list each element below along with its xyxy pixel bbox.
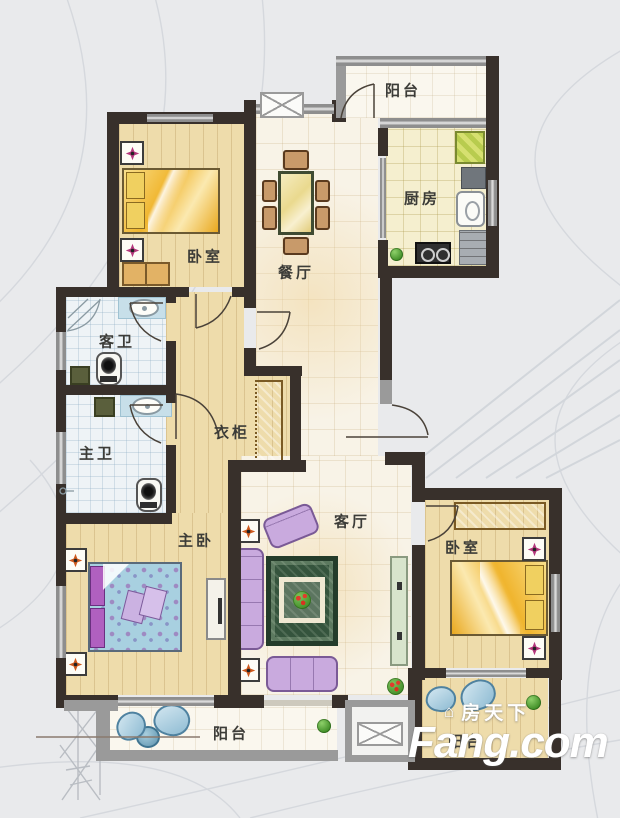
window <box>118 697 214 706</box>
fang-watermark: ⌂ 房天下 Fang.com <box>408 698 608 765</box>
pillow <box>126 172 145 199</box>
room-label-kitchen: 厨房 <box>404 188 440 209</box>
sheet-fold <box>103 564 129 590</box>
flue-shaft-box <box>260 92 304 118</box>
room-label-master-bedroom: 主卧 <box>178 530 214 551</box>
wardrobe <box>255 380 283 466</box>
nightstand-lamp-icon <box>120 141 144 165</box>
knob <box>397 582 402 590</box>
wall <box>107 112 119 297</box>
balcony-sliding-door <box>446 670 526 677</box>
toilet <box>96 352 122 386</box>
wall <box>166 341 176 403</box>
bath-cabinet <box>94 397 115 417</box>
bath-cabinet <box>70 366 90 385</box>
headboard-panel <box>90 566 105 606</box>
wall <box>412 545 425 680</box>
bathroom-sink <box>129 299 159 317</box>
window <box>488 180 497 226</box>
table-plant-icon <box>293 591 311 609</box>
wall <box>412 488 562 500</box>
door-threshold <box>264 700 332 706</box>
wall <box>290 368 301 468</box>
dining-chair <box>315 206 330 230</box>
sink-basin <box>465 201 480 221</box>
nightstand-lamp-icon <box>522 537 546 561</box>
room-label-living-room: 客厅 <box>334 511 370 532</box>
plant-icon <box>317 719 331 733</box>
wall <box>244 100 256 292</box>
wall <box>380 278 392 380</box>
dresser <box>122 262 170 286</box>
wall <box>107 287 189 297</box>
room-label-balcony-bottom-left: 阳台 <box>213 723 249 744</box>
window <box>147 114 213 122</box>
bed-double <box>122 168 220 234</box>
window <box>56 332 66 370</box>
room-label-wardrobe-closet: 衣柜 <box>214 422 250 443</box>
wall <box>56 513 172 524</box>
room-label-dining-room: 餐厅 <box>278 262 314 283</box>
toilet <box>136 478 162 512</box>
tv <box>218 598 222 624</box>
dining-chair <box>283 150 309 170</box>
knob <box>397 632 402 640</box>
tv-dresser <box>206 578 226 640</box>
headboard-panel <box>90 608 105 648</box>
wall <box>378 266 499 278</box>
room-label-bedroom-right: 卧室 <box>445 537 481 558</box>
pillow <box>525 600 544 630</box>
wall <box>486 56 499 278</box>
window <box>56 586 66 658</box>
wall <box>56 385 172 395</box>
bathroom-sink <box>132 397 162 415</box>
tv-cabinet <box>390 556 408 666</box>
wall <box>166 445 176 513</box>
room-label-master-bathroom: 主卫 <box>79 443 115 464</box>
window <box>551 574 560 632</box>
room-label-bedroom-upper-left: 卧室 <box>187 246 223 267</box>
kitchen-cabinet <box>459 230 487 265</box>
burner <box>436 248 450 262</box>
dining-chair <box>283 237 309 255</box>
burner <box>421 248 435 262</box>
bed-double <box>450 560 548 636</box>
wall <box>244 292 256 308</box>
entry-door-jamb <box>380 380 392 404</box>
dining-chair <box>315 180 330 202</box>
wall <box>228 470 241 695</box>
bed-master <box>88 562 182 652</box>
nightstand-lamp-icon <box>63 652 87 676</box>
dining-table <box>278 171 314 235</box>
sheet-fold <box>148 170 188 232</box>
ac-unit-box <box>357 722 403 746</box>
room-label-guest-bathroom: 客卫 <box>99 331 135 352</box>
balcony-window-wall <box>336 56 486 66</box>
kitchen-sink <box>456 191 485 227</box>
refrigerator <box>455 131 485 164</box>
watermark-brand-en: Fang.com <box>408 721 608 765</box>
floor-plan-canvas: 阳台 卧室 餐厅 厨房 客卫 主卫 衣柜 主卧 客厅 卧室 阳台 阳台 ⌂ 房天… <box>0 0 620 818</box>
wall <box>378 128 388 156</box>
wall <box>166 287 176 303</box>
stove-burners <box>415 242 451 264</box>
sofa-loveseat <box>266 656 338 692</box>
nightstand-lamp-icon <box>63 548 87 572</box>
kitchen-counter <box>461 167 486 189</box>
balcony-low-wall <box>96 750 338 761</box>
nightstand-lamp-icon <box>120 238 144 262</box>
wall <box>214 695 264 708</box>
wardrobe <box>454 502 546 530</box>
kitchen-sliding-door <box>380 158 386 238</box>
plant-icon <box>390 248 403 261</box>
dining-chair <box>262 180 277 202</box>
plant-icon <box>387 678 404 695</box>
balcony-kitchen-window <box>380 118 486 128</box>
wall <box>378 240 388 268</box>
pillow <box>126 202 145 229</box>
room-label-balcony-top: 阳台 <box>385 80 421 101</box>
pillow <box>525 565 544 595</box>
sheet-fold <box>480 562 520 634</box>
nightstand-lamp-icon <box>522 636 546 660</box>
dining-chair <box>262 206 277 230</box>
window <box>56 432 66 484</box>
pillow <box>139 586 168 620</box>
